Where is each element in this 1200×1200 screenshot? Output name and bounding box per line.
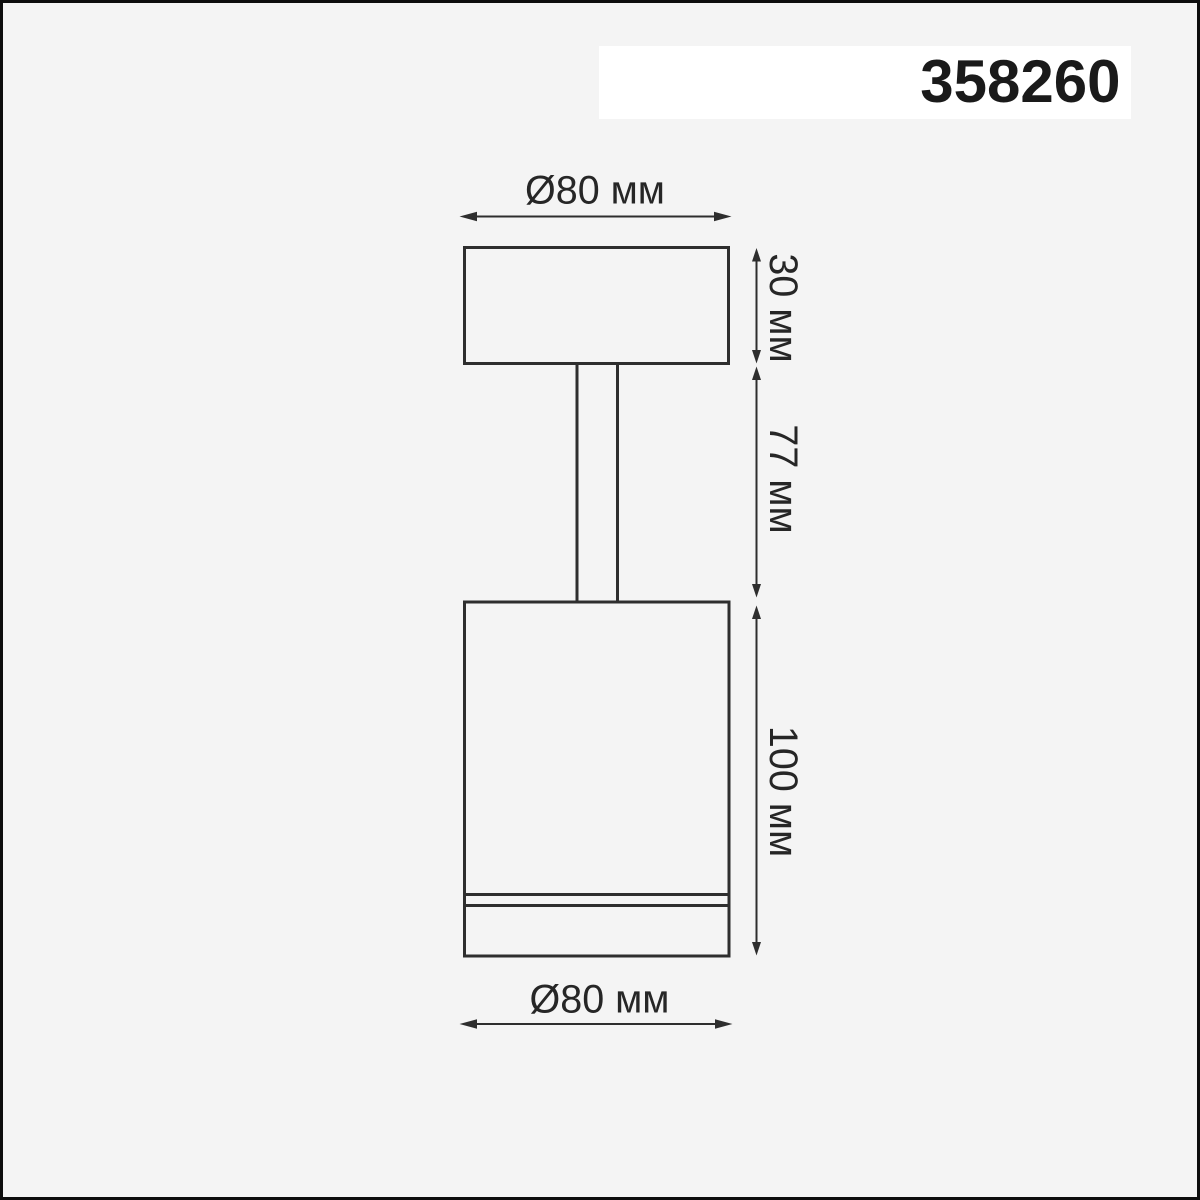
svg-text:77 мм: 77 мм: [761, 424, 805, 533]
svg-text:30 мм: 30 мм: [761, 253, 805, 362]
svg-text:100 мм: 100 мм: [761, 726, 805, 857]
svg-text:358260: 358260: [920, 48, 1120, 115]
svg-text:Ø80 мм: Ø80 мм: [525, 169, 665, 213]
svg-text:Ø80 мм: Ø80 мм: [530, 978, 670, 1022]
